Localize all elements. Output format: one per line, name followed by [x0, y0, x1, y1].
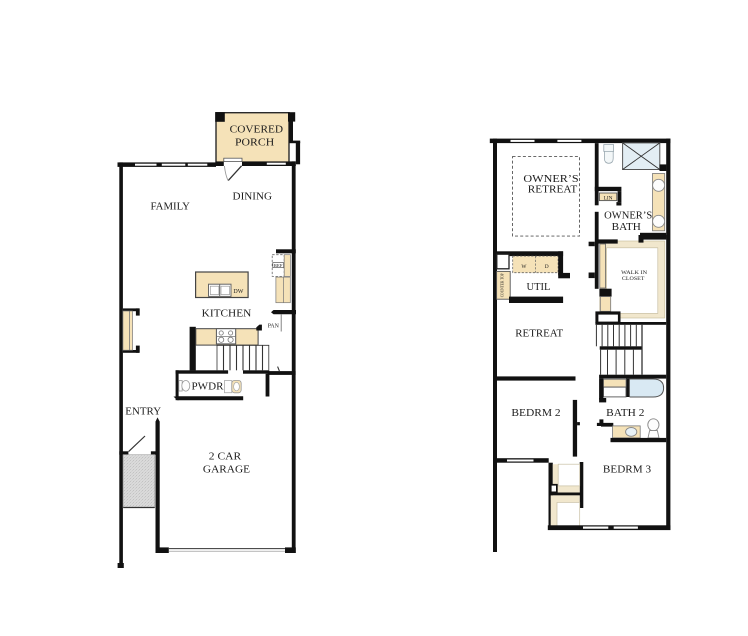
svg-text:UTIL: UTIL	[527, 281, 551, 293]
svg-text:BEDRM 3: BEDRM 3	[603, 463, 652, 475]
svg-text:RETREAT: RETREAT	[515, 328, 563, 340]
svg-text:D: D	[545, 264, 549, 270]
svg-text:DW: DW	[233, 289, 243, 295]
svg-text:PWDR: PWDR	[192, 381, 225, 393]
svg-text:OWNER’S: OWNER’S	[604, 210, 652, 222]
svg-text:PAN: PAN	[268, 324, 280, 330]
svg-text:LIN: LIN	[604, 196, 614, 201]
svg-text:KITCHEN: KITCHEN	[202, 308, 252, 320]
svg-text:BATH: BATH	[612, 221, 641, 233]
svg-text:BEDRM 2: BEDRM 2	[511, 407, 560, 419]
svg-text:REF: REF	[274, 263, 283, 268]
svg-text:GARAGE: GARAGE	[203, 464, 250, 476]
svg-text:DINING: DINING	[233, 190, 273, 202]
svg-text:2 CAR: 2 CAR	[209, 451, 242, 463]
svg-text:CLOSET: CLOSET	[622, 276, 645, 282]
svg-text:FAMILY: FAMILY	[151, 200, 190, 212]
svg-text:WALK IN: WALK IN	[621, 270, 647, 276]
svg-text:PORCH: PORCH	[235, 137, 274, 149]
svg-text:BATH 2: BATH 2	[606, 407, 644, 419]
svg-text:COVERED: COVERED	[230, 123, 283, 135]
svg-text:ENTRY: ENTRY	[125, 405, 161, 417]
svg-text:RETREAT: RETREAT	[528, 184, 578, 196]
svg-text:COUNTER TOP: COUNTER TOP	[500, 273, 505, 297]
